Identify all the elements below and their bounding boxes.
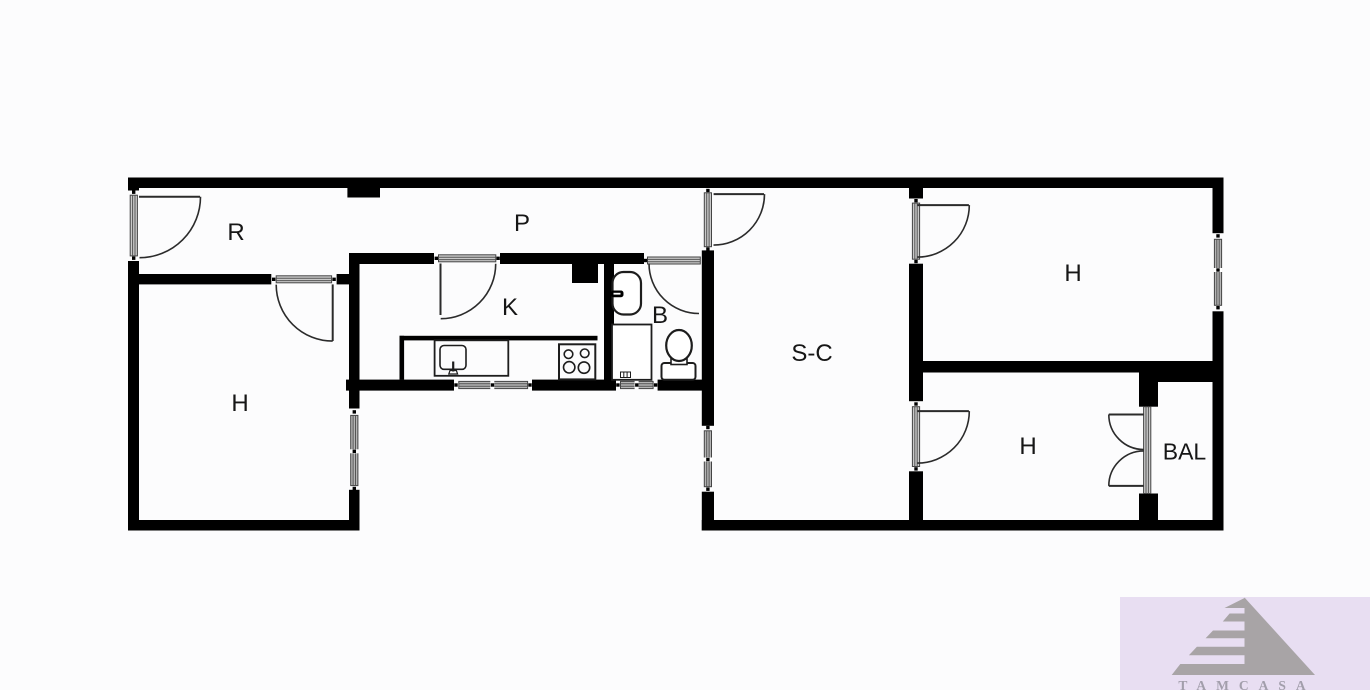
svg-text:K: K bbox=[502, 294, 518, 321]
svg-text:H: H bbox=[1064, 260, 1081, 287]
svg-text:BAL: BAL bbox=[1163, 439, 1207, 465]
svg-text:B: B bbox=[652, 302, 668, 329]
svg-text:P: P bbox=[514, 210, 530, 237]
svg-text:H: H bbox=[1019, 433, 1036, 460]
svg-text:S-C: S-C bbox=[791, 340, 832, 367]
svg-text:H: H bbox=[231, 390, 248, 417]
svg-text:R: R bbox=[227, 219, 244, 246]
svg-text:TAMCASA: TAMCASA bbox=[1178, 678, 1315, 690]
